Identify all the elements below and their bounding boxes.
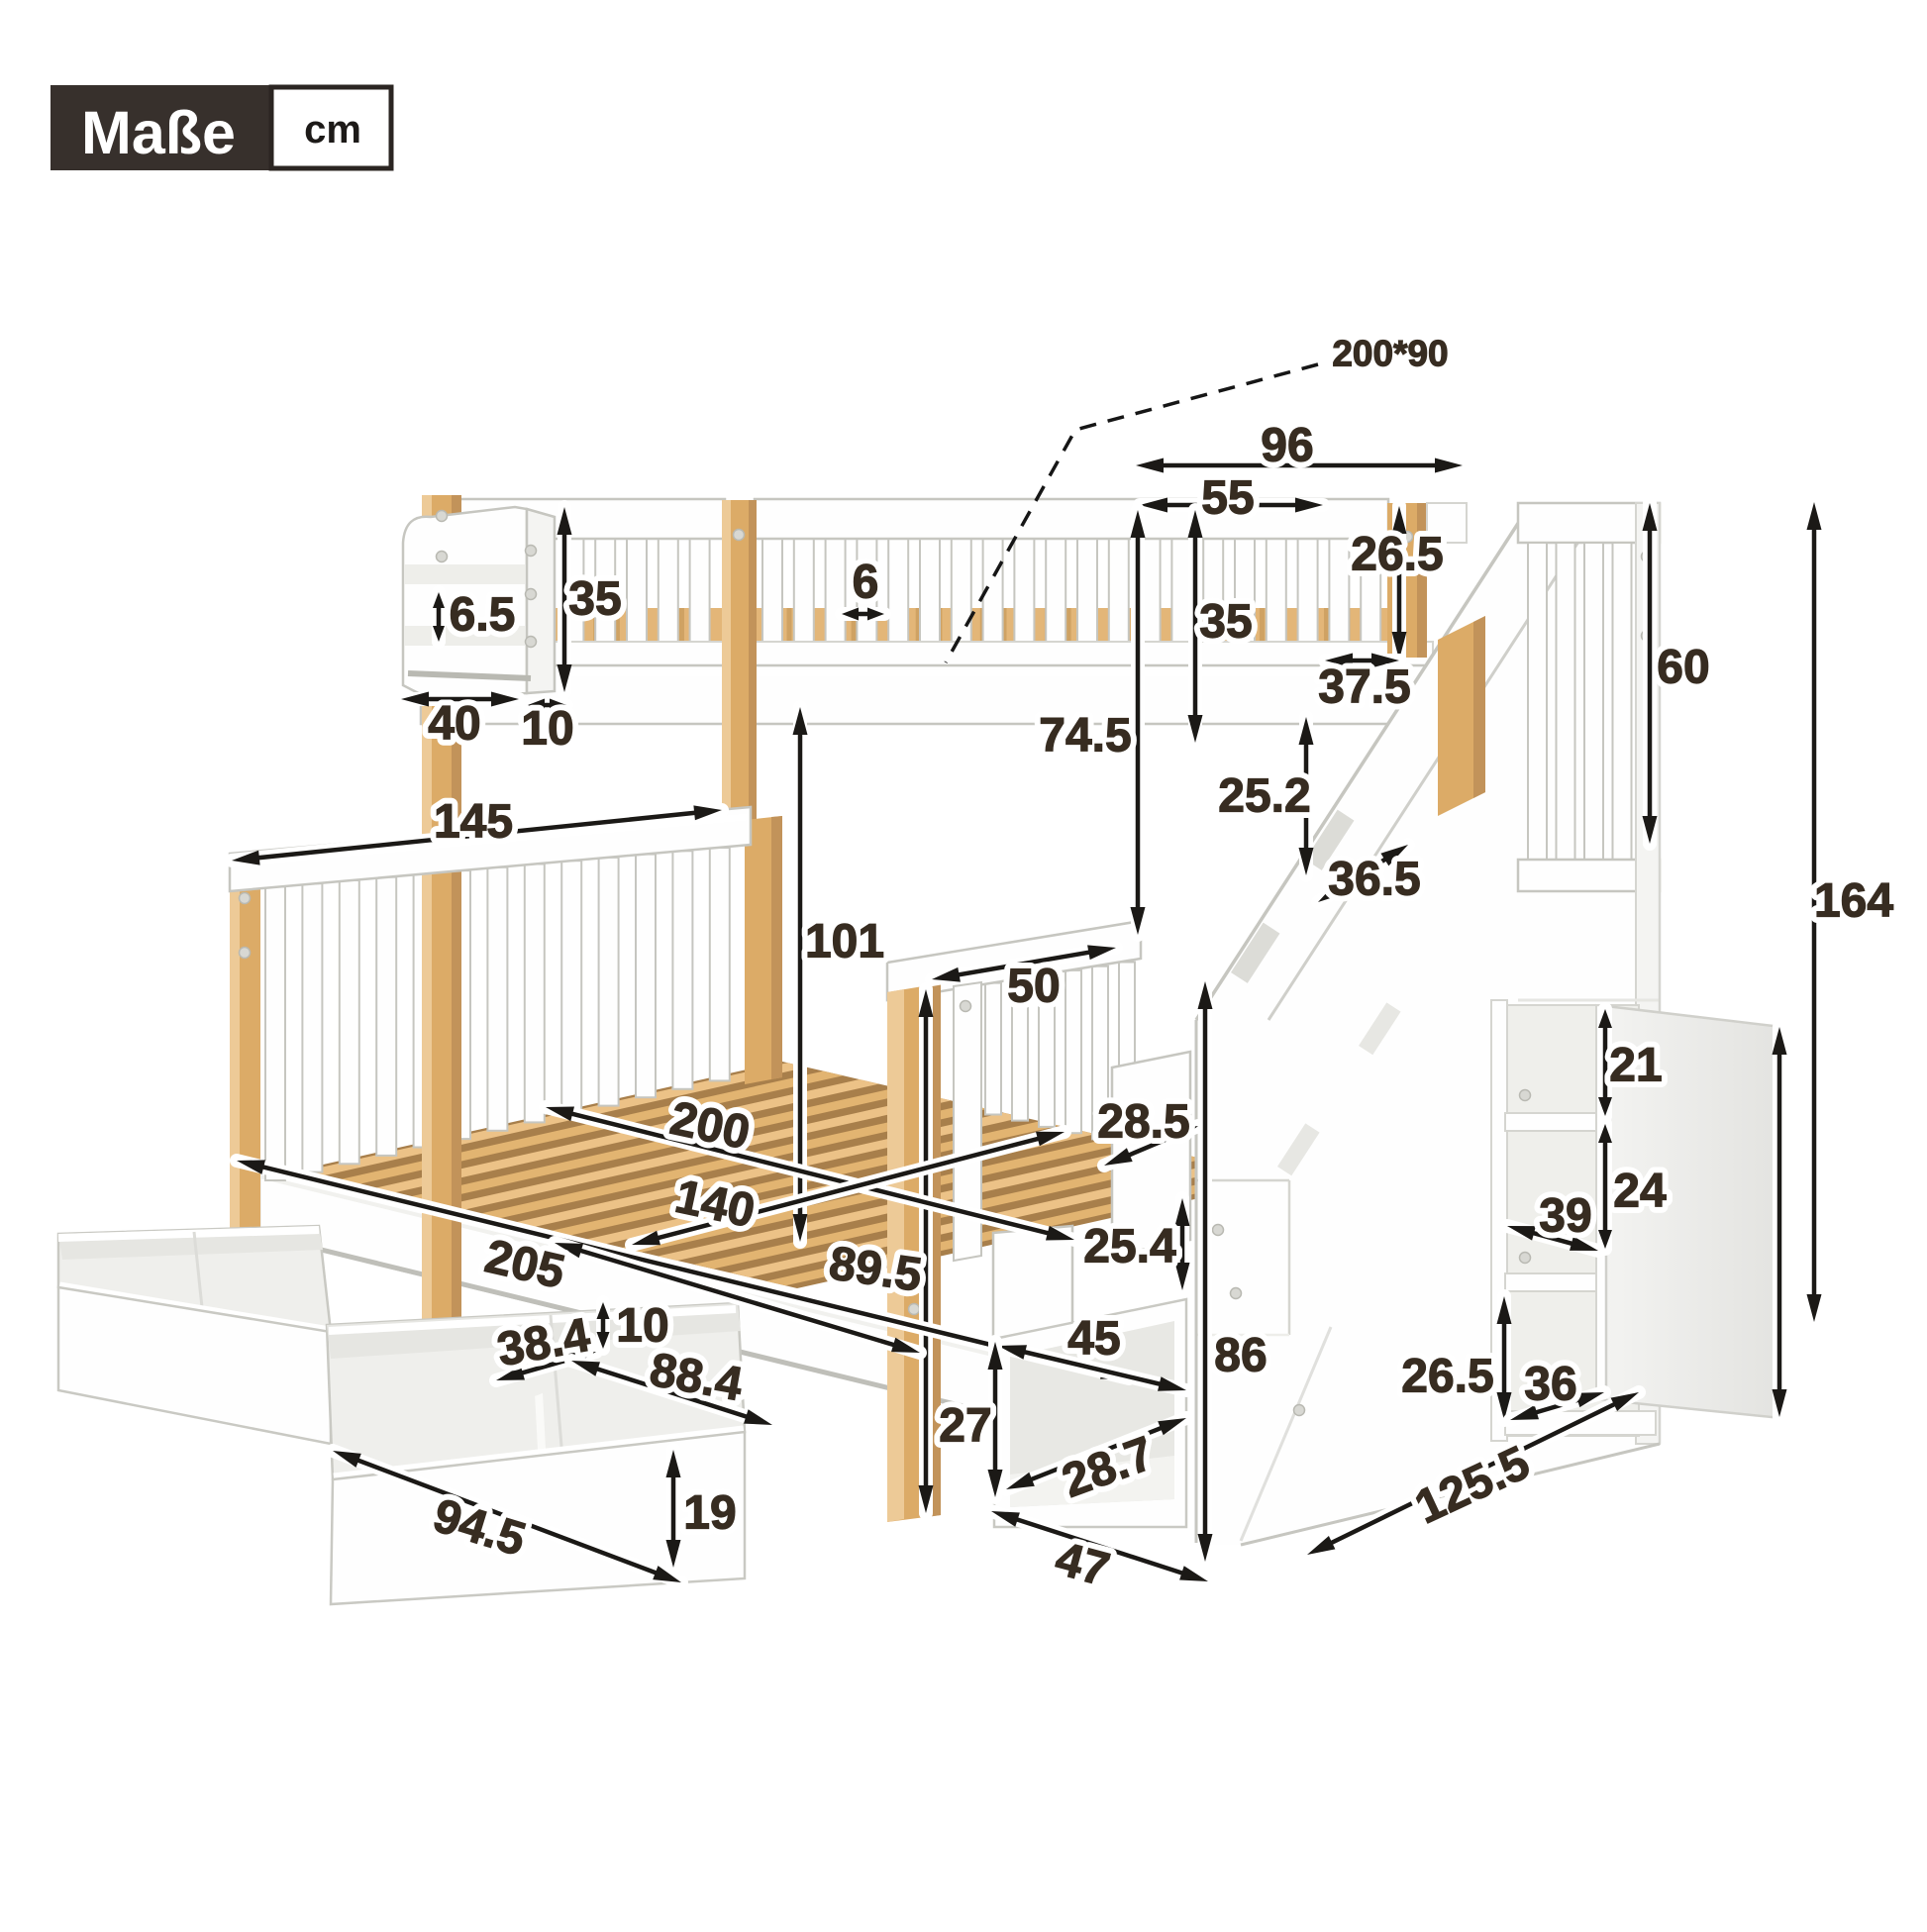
svg-text:25.4: 25.4 [1083,1221,1176,1273]
svg-text:101: 101 [805,916,884,968]
svg-text:145: 145 [434,796,513,849]
svg-text:26.5: 26.5 [1401,1351,1493,1403]
svg-text:55: 55 [1201,472,1254,525]
svg-text:96: 96 [1261,420,1313,472]
svg-text:45: 45 [1067,1313,1120,1366]
svg-text:39: 39 [1539,1190,1591,1243]
svg-text:Maße: Maße [81,99,236,166]
svg-text:37.5: 37.5 [1318,661,1410,714]
svg-text:19: 19 [683,1487,736,1540]
svg-text:35: 35 [568,573,621,626]
svg-text:21: 21 [1609,1040,1662,1092]
svg-text:200*90: 200*90 [1332,334,1448,374]
svg-text:60: 60 [1657,642,1709,694]
svg-text:27: 27 [939,1400,991,1453]
svg-text:25.2: 25.2 [1218,770,1310,823]
svg-text:6.5: 6.5 [450,589,516,642]
svg-text:36.5: 36.5 [1328,854,1420,906]
svg-text:40: 40 [428,698,480,751]
svg-text:74.5: 74.5 [1039,710,1131,763]
svg-text:cm: cm [304,108,361,152]
svg-text:24: 24 [1613,1166,1667,1218]
svg-text:26.5: 26.5 [1351,529,1443,581]
svg-text:28.5: 28.5 [1097,1096,1189,1149]
svg-text:6: 6 [853,557,879,609]
svg-text:10: 10 [521,703,573,756]
svg-text:86: 86 [1214,1330,1267,1382]
svg-text:35: 35 [1199,596,1252,649]
svg-text:36: 36 [1524,1359,1576,1411]
svg-text:164: 164 [1814,875,1893,928]
svg-text:50: 50 [1007,961,1060,1013]
